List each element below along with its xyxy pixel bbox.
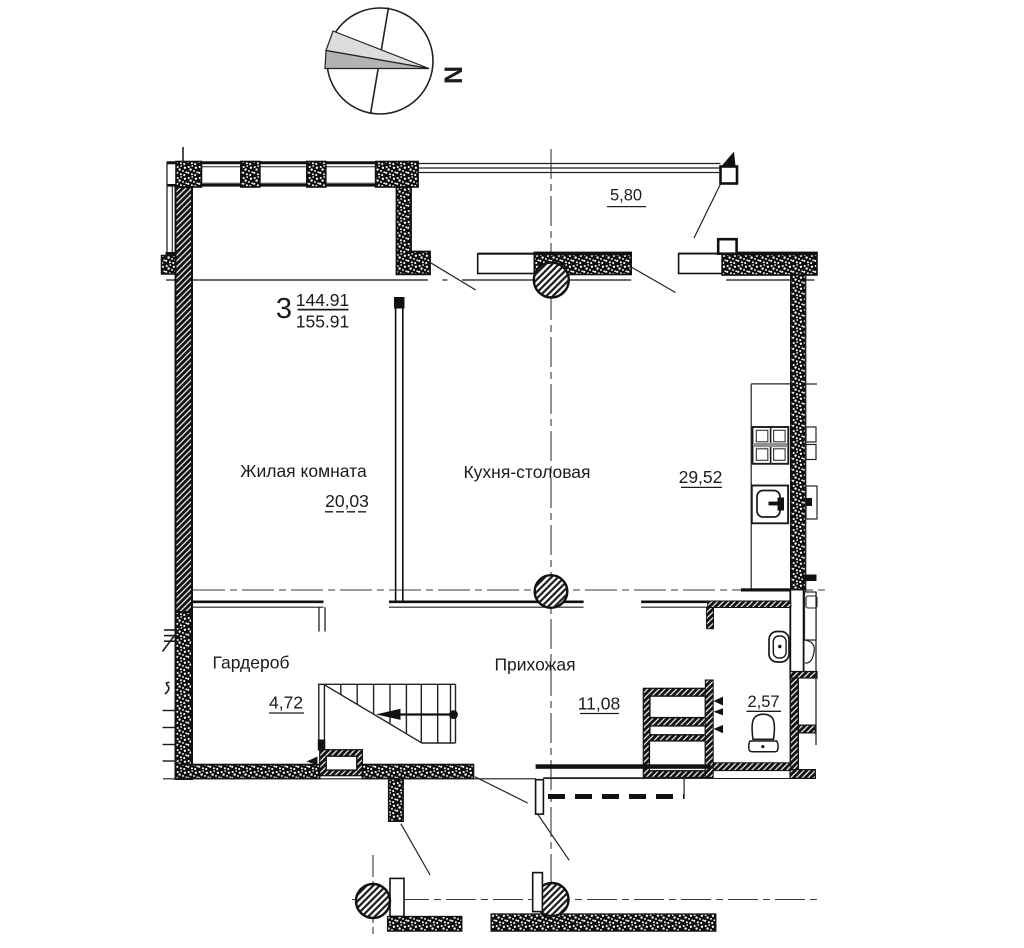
svg-text:4,72: 4,72 <box>269 693 303 713</box>
svg-text:Жилая комната: Жилая комната <box>240 461 367 481</box>
svg-text:Кухня-столовая: Кухня-столовая <box>463 462 590 482</box>
svg-text:3: 3 <box>276 293 292 325</box>
svg-text:155.91: 155.91 <box>296 312 350 332</box>
svg-text:144.91: 144.91 <box>296 290 350 310</box>
svg-text:Прихожая: Прихожая <box>494 655 575 675</box>
svg-text:Гардероб: Гардероб <box>213 653 290 673</box>
svg-text:11,08: 11,08 <box>578 694 621 714</box>
svg-text:5,80: 5,80 <box>610 187 642 205</box>
svg-text:2,57: 2,57 <box>747 693 779 711</box>
svg-text:29,52: 29,52 <box>679 467 723 487</box>
svg-text:20,03: 20,03 <box>325 491 369 511</box>
svg-text:N: N <box>439 66 467 84</box>
